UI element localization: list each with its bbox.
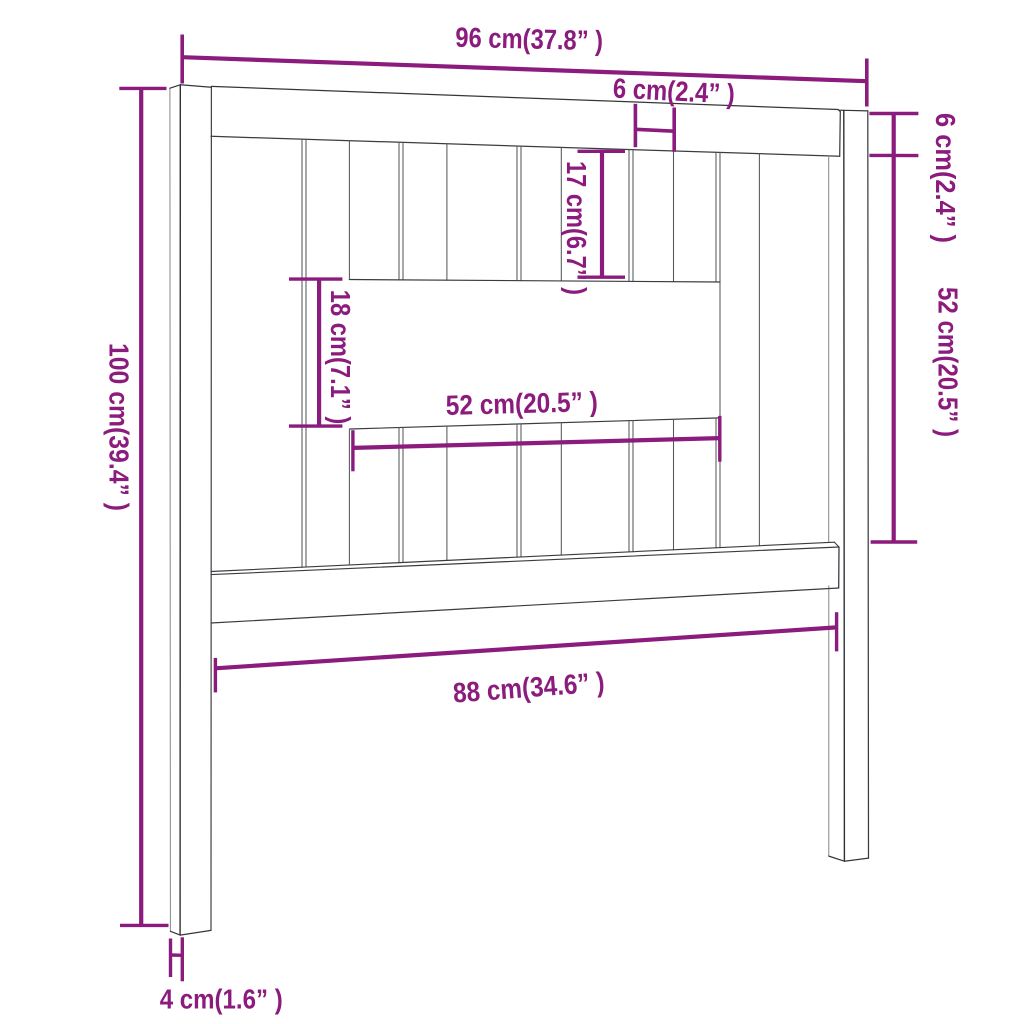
svg-text:17 cm(6.7” ): 17 cm(6.7” ) (561, 161, 592, 295)
svg-text:100 cm(39.4” ): 100 cm(39.4” ) (104, 343, 135, 511)
svg-text:6 cm(2.4” ): 6 cm(2.4” ) (612, 73, 735, 110)
svg-text:18 cm(7.1” ): 18 cm(7.1” ) (325, 290, 356, 425)
svg-text:52 cm(20.5” ): 52 cm(20.5” ) (933, 287, 964, 437)
svg-text:4 cm(1.6” ): 4 cm(1.6” ) (160, 984, 283, 1015)
svg-text:52 cm(20.5” ): 52 cm(20.5” ) (445, 386, 598, 421)
svg-text:96 cm(37.8” ): 96 cm(37.8” ) (455, 22, 603, 57)
svg-text:6 cm(2.4” ): 6 cm(2.4” ) (930, 113, 961, 243)
